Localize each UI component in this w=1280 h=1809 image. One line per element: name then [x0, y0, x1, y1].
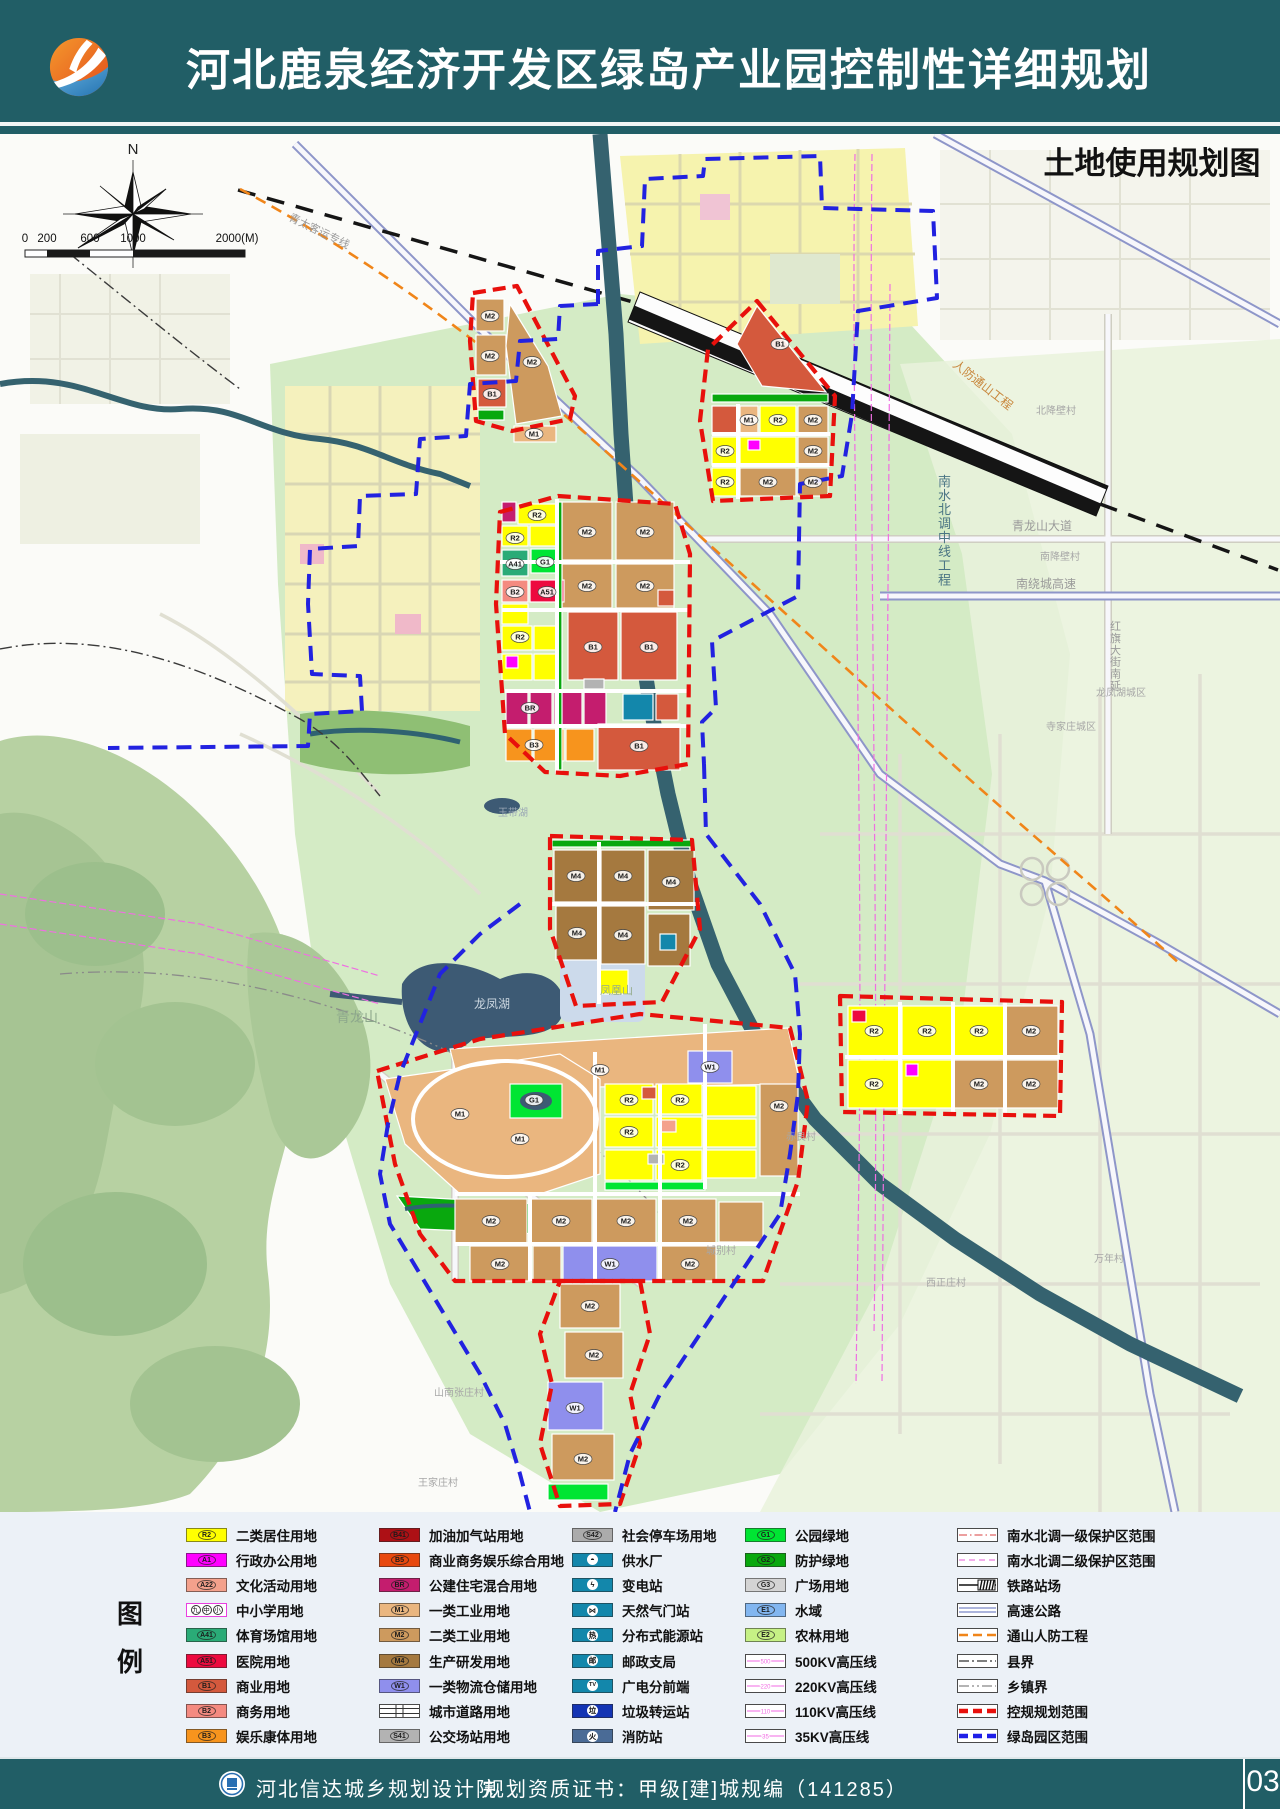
svg-text:M2: M2	[485, 352, 495, 361]
svg-text:B1: B1	[644, 643, 654, 652]
svg-text:A41: A41	[508, 560, 522, 569]
parcel-code: B1	[584, 642, 602, 653]
legend-item-label: 二类居住用地	[236, 1525, 317, 1545]
svg-text:M2: M2	[486, 1217, 496, 1226]
parcel-code: B2	[506, 587, 524, 598]
parcel-code: R2	[671, 1095, 689, 1106]
legend-item: B5商业商务娱乐综合用地	[379, 1547, 564, 1572]
place-label: 万年村	[1094, 1252, 1124, 1265]
legend-item-label: 分布式能源站	[622, 1625, 703, 1645]
legend-item: 通山人防工程	[957, 1623, 1156, 1648]
legend-item: 南水北调二级保护区范围	[957, 1547, 1156, 1572]
svg-text:M2: M2	[621, 1217, 631, 1226]
svg-text:R2: R2	[515, 633, 525, 642]
svg-text:M4: M4	[618, 931, 629, 940]
legend-swatch: G2	[745, 1553, 786, 1567]
place-label: 南水北调中线工程	[938, 474, 951, 587]
parcel-code: M2	[636, 581, 654, 592]
parcel-code: A41	[506, 559, 524, 570]
parcel-code: M4	[614, 930, 632, 941]
parcel-code: R2	[620, 1095, 638, 1106]
place-label: 王家庄村	[418, 1476, 458, 1489]
place-label: 红旗大街南延	[1110, 620, 1121, 692]
legend-item-label: 垃圾转运站	[622, 1701, 690, 1721]
legend-swatch: A1	[186, 1553, 227, 1567]
legend-swatch: 110	[745, 1704, 786, 1718]
legend-column: B41加油加气站用地B5商业商务娱乐综合用地BR公建住宅混合用地M1一类工业用地…	[379, 1522, 564, 1749]
parcel-code: M2	[552, 1216, 570, 1227]
legend-item: 110110KV高压线	[745, 1698, 877, 1723]
legend-item: 火消防站	[572, 1724, 717, 1749]
legend-item-label: 广电分前端	[622, 1676, 690, 1696]
west-village-grid	[285, 386, 480, 711]
institute-name: 河北信达城乡规划设计院	[256, 1773, 498, 1802]
legend-swatch: BR	[379, 1578, 420, 1592]
svg-text:220: 220	[760, 1684, 771, 1690]
legend-item-label: 城市道路用地	[429, 1701, 510, 1721]
parcel-code: M1	[451, 1109, 469, 1120]
legend-item: G2防护绿地	[745, 1547, 877, 1572]
svg-text:B1: B1	[487, 390, 497, 399]
legend-item: ⋈天然气门站	[572, 1598, 717, 1623]
svg-text:M2: M2	[640, 582, 650, 591]
svg-text:110: 110	[761, 1709, 771, 1715]
legend-swatch	[957, 1679, 998, 1693]
svg-text:M4: M4	[571, 872, 582, 881]
legend-item-label: 文化活动用地	[236, 1575, 317, 1595]
legend-swatch: R2	[186, 1528, 227, 1542]
svg-text:B2: B2	[510, 588, 520, 597]
legend-item: 高速公路	[957, 1598, 1156, 1623]
svg-text:2000(M): 2000(M)	[216, 233, 259, 245]
legend-swatch: M1	[379, 1603, 420, 1617]
legend-column: R2二类居住用地A1行政办公用地A22文化活动用地九中小中小学用地A41体育场馆…	[186, 1522, 317, 1749]
svg-text:B1: B1	[775, 340, 785, 349]
svg-text:R2: R2	[720, 447, 730, 456]
land-use-map[interactable]: M2M2B1M2M1B1M1R2M2R2M2M2M2R2M2M2M2M2R2R2…	[0, 134, 1280, 1512]
legend-item: BR公建住宅混合用地	[379, 1572, 564, 1597]
legend-item-label: 公交场站用地	[429, 1726, 510, 1746]
parcel-code: M2	[491, 1259, 509, 1270]
svg-text:M2: M2	[1026, 1027, 1036, 1036]
svg-text:M2: M2	[808, 416, 818, 425]
legend-swatch: A22	[186, 1578, 227, 1592]
legend-item: B1商业用地	[186, 1673, 317, 1698]
parcel-code: R2	[511, 632, 529, 643]
legend-item-label: 绿岛园区范围	[1007, 1726, 1088, 1746]
legend-swatch: B2	[186, 1704, 227, 1718]
legend-swatch: A51	[186, 1654, 227, 1668]
svg-text:M2: M2	[808, 478, 818, 487]
legend-item: G3广场用地	[745, 1572, 877, 1597]
parcel-code: M2	[636, 527, 654, 538]
legend-item: 城市道路用地	[379, 1698, 564, 1723]
parcel-code: A51	[538, 587, 556, 598]
parcel-code: B1	[771, 339, 789, 350]
legend-item-label: 县界	[1007, 1651, 1034, 1671]
place-label: 寺家庄城区	[1046, 720, 1096, 733]
legend-swatch: B3	[186, 1729, 227, 1743]
legend-swatch	[957, 1578, 998, 1592]
svg-text:M2: M2	[589, 1351, 599, 1360]
legend-swatch	[957, 1729, 998, 1743]
map-sheet-title: 土地使用规划图	[1044, 146, 1261, 181]
legend-item: 县界	[957, 1648, 1156, 1673]
legend-item: 南水北调一级保护区范围	[957, 1522, 1156, 1547]
legend-item: B3娱乐康体用地	[186, 1724, 317, 1749]
parcel-code: M2	[1022, 1079, 1040, 1090]
legend-item-label: 220KV高压线	[795, 1676, 877, 1696]
svg-text:M2: M2	[485, 312, 495, 321]
legend-item: 热分布式能源站	[572, 1623, 717, 1648]
parcel-code: W1	[701, 1062, 719, 1073]
legend-swatch: S41	[379, 1729, 420, 1743]
legend-item: 乡镇界	[957, 1673, 1156, 1698]
svg-text:M1: M1	[455, 1110, 465, 1119]
legend-item: A51医院用地	[186, 1648, 317, 1673]
legend-swatch: ⋈	[572, 1603, 613, 1617]
svg-text:M2: M2	[808, 447, 818, 456]
svg-text:R2: R2	[974, 1027, 984, 1036]
parcel-code: M2	[770, 1101, 788, 1112]
page-title: 河北鹿泉经济开发区绿岛产业园控制性详细规划	[186, 34, 1206, 98]
parcel-code: M2	[578, 527, 596, 538]
svg-text:M2: M2	[585, 1302, 595, 1311]
svg-text:R2: R2	[869, 1027, 879, 1036]
header-bar: 河北鹿泉经济开发区绿岛产业园控制性详细规划	[0, 0, 1280, 122]
legend-item: 垃垃圾转运站	[572, 1698, 717, 1723]
svg-text:M2: M2	[1026, 1080, 1036, 1089]
legend-item-label: 南水北调二级保护区范围	[1007, 1550, 1156, 1570]
parcel-code: M1	[740, 415, 758, 426]
legend-item-label: 乡镇界	[1007, 1676, 1048, 1696]
svg-text:M1: M1	[515, 1135, 525, 1144]
legend-item: S42社会停车场用地	[572, 1522, 717, 1547]
legend-swatch: B41	[379, 1528, 420, 1542]
legend-item: 500500KV高压线	[745, 1648, 877, 1673]
svg-text:35: 35	[762, 1734, 769, 1740]
legend-item: M1一类工业用地	[379, 1598, 564, 1623]
legend-item-label: 体育场馆用地	[236, 1625, 317, 1645]
place-label: 玉带湖	[498, 807, 528, 819]
legend-item-label: 35KV高压线	[795, 1726, 869, 1746]
parcel-code: M2	[970, 1079, 988, 1090]
map-canvas: M2M2B1M2M1B1M1R2M2R2M2M2M2R2M2M2M2M2R2R2…	[0, 134, 1280, 1512]
svg-text:R2: R2	[532, 511, 542, 520]
legend-item: G1公园绿地	[745, 1522, 877, 1547]
legend-swatch	[379, 1704, 420, 1718]
legend-swatch	[957, 1528, 998, 1542]
legend-swatch	[957, 1704, 998, 1718]
svg-text:R2: R2	[624, 1128, 634, 1137]
svg-text:M4: M4	[666, 878, 677, 887]
parcel-code: M2	[679, 1216, 697, 1227]
legend-item-label: 加油加气站用地	[429, 1525, 524, 1545]
svg-text:G1: G1	[529, 1096, 539, 1105]
parcel-code: M4	[614, 871, 632, 882]
svg-text:BR: BR	[525, 704, 536, 713]
legend-swatch: M2	[379, 1628, 420, 1642]
institute-seal-icon	[218, 1770, 246, 1798]
svg-text:R2: R2	[675, 1161, 685, 1170]
parcel-code: M2	[578, 581, 596, 592]
legend-item: 九中小中小学用地	[186, 1598, 317, 1623]
legend-item-label: 水域	[795, 1600, 822, 1620]
place-label: 南绕城高速	[1016, 576, 1076, 591]
legend-swatch: ◓	[572, 1553, 613, 1567]
legend-item-label: 供水厂	[622, 1550, 663, 1570]
svg-text:0: 0	[22, 233, 28, 245]
legend-swatch: M4	[379, 1654, 420, 1668]
parcel-code: B1	[640, 642, 658, 653]
parcel-code: M4	[662, 877, 680, 888]
parcel-code: G1	[525, 1095, 543, 1106]
svg-text:M2: M2	[556, 1217, 566, 1226]
legend-item: M4生产研发用地	[379, 1648, 564, 1673]
svg-text:R2: R2	[675, 1096, 685, 1105]
parcel-code: M2	[1022, 1026, 1040, 1037]
legend-item: 铁路站场	[957, 1572, 1156, 1597]
legend-item-label: 南水北调一级保护区范围	[1007, 1525, 1156, 1545]
legend-item: R2二类居住用地	[186, 1522, 317, 1547]
legend-swatch: G1	[745, 1528, 786, 1542]
legend-swatch: 热	[572, 1628, 613, 1642]
parcel-code: M2	[523, 357, 541, 368]
parcel-code: R2	[865, 1079, 883, 1090]
legend-swatch: 垃	[572, 1704, 613, 1718]
svg-text:R2: R2	[510, 534, 520, 543]
svg-text:W1: W1	[569, 1404, 580, 1413]
svg-text:500: 500	[760, 1659, 771, 1665]
place-label: 龙凤湖城区	[1096, 686, 1146, 699]
legend-item-label: 娱乐康体用地	[236, 1726, 317, 1746]
legend-item: S41公交场站用地	[379, 1724, 564, 1749]
parcel-code: M1	[591, 1065, 609, 1076]
legend-item-label: 商务用地	[236, 1701, 290, 1721]
parcel-code: M2	[804, 477, 822, 488]
svg-text:R2: R2	[773, 416, 783, 425]
parcel-code: M1	[525, 429, 543, 440]
legend-item: B2商务用地	[186, 1698, 317, 1723]
svg-text:M2: M2	[683, 1217, 693, 1226]
svg-text:M2: M2	[527, 358, 537, 367]
legend-swatch: 邮	[572, 1654, 613, 1668]
svg-text:M1: M1	[595, 1066, 605, 1075]
legend-column: S42社会停车场用地◓供水厂ϟ变电站⋈天然气门站热分布式能源站邮邮政支局TV广电…	[572, 1522, 717, 1749]
svg-text:M2: M2	[685, 1260, 695, 1269]
legend-swatch: 九中小	[186, 1603, 227, 1617]
parcel-code: M2	[681, 1259, 699, 1270]
parcel-code: M2	[481, 351, 499, 362]
parcel-code: BR	[521, 703, 539, 714]
svg-text:M2: M2	[640, 528, 650, 537]
legend-swatch	[957, 1553, 998, 1567]
legend-item: 邮邮政支局	[572, 1648, 717, 1673]
legend-item: 控规规划范围	[957, 1698, 1156, 1723]
legend-item-label: 铁路站场	[1007, 1575, 1061, 1595]
legend-item-label: 医院用地	[236, 1651, 290, 1671]
parcel-code: M2	[759, 477, 777, 488]
parcel-code: B3	[525, 740, 543, 751]
legend-item-label: 社会停车场用地	[622, 1525, 717, 1545]
legend-swatch: S42	[572, 1528, 613, 1542]
page-number: 03	[1246, 1765, 1280, 1799]
legend-item-label: 农林用地	[795, 1625, 849, 1645]
svg-text:M1: M1	[529, 430, 539, 439]
legend-item-label: 控规规划范围	[1007, 1701, 1088, 1721]
svg-text:A51: A51	[540, 588, 554, 597]
legend-item: A1行政办公用地	[186, 1547, 317, 1572]
parcel-code: M2	[482, 1216, 500, 1227]
parcel-code: M2	[617, 1216, 635, 1227]
parcel-code: R2	[528, 510, 546, 521]
legend-item-label: 生产研发用地	[429, 1651, 510, 1671]
legend-item-label: 高速公路	[1007, 1600, 1061, 1620]
parcel-code: R2	[918, 1026, 936, 1037]
legend-swatch: A41	[186, 1628, 227, 1642]
legend-panel: 图 例 R2二类居住用地A1行政办公用地A22文化活动用地九中小中小学用地A41…	[0, 1512, 1280, 1757]
place-label: 西正庄村	[926, 1276, 966, 1289]
svg-text:B1: B1	[634, 742, 644, 751]
parcel-code: R2	[620, 1127, 638, 1138]
place-label: 龙凤湖	[474, 996, 510, 1011]
parcel-code: M2	[585, 1350, 603, 1361]
legend-swatch	[957, 1654, 998, 1668]
svg-text:M2: M2	[495, 1260, 505, 1269]
certificate-text: 规划资质证书：甲级[建]城规编（141285）	[484, 1773, 908, 1802]
svg-text:1000: 1000	[120, 233, 146, 245]
legend-column: 南水北调一级保护区范围南水北调二级保护区范围铁路站场高速公路通山人防工程县界乡镇…	[957, 1522, 1156, 1749]
legend-item-label: 公建住宅混合用地	[429, 1575, 537, 1595]
svg-text:M4: M4	[618, 872, 629, 881]
legend-item-label: 二类工业用地	[429, 1625, 510, 1645]
svg-text:W1: W1	[704, 1063, 715, 1072]
svg-text:W1: W1	[604, 1260, 615, 1269]
legend-item: 220220KV高压线	[745, 1673, 877, 1698]
legend-item-label: 110KV高压线	[795, 1701, 876, 1721]
footer-bar: 河北信达城乡规划设计院 规划资质证书：甲级[建]城规编（141285） 03	[0, 1757, 1280, 1809]
planning-poster: 河北鹿泉经济开发区绿岛产业园控制性详细规划	[0, 0, 1280, 1809]
place-label: 赤良村	[786, 1130, 816, 1143]
legend-item-label: 一类工业用地	[429, 1600, 510, 1620]
legend-item: 3535KV高压线	[745, 1724, 877, 1749]
legend-title-char1: 图	[110, 1594, 150, 1631]
legend-item-label: 消防站	[622, 1726, 663, 1746]
parcel-code: M4	[568, 928, 586, 939]
legend-swatch	[957, 1628, 998, 1642]
parcel-code: M4	[567, 871, 585, 882]
legend-item: A41体育场馆用地	[186, 1623, 317, 1648]
svg-text:B3: B3	[529, 741, 539, 750]
parcel-code: R2	[716, 477, 734, 488]
svg-text:R2: R2	[624, 1096, 634, 1105]
parcel-code: G1	[536, 557, 554, 568]
legend-item: 绿岛园区范围	[957, 1724, 1156, 1749]
legend-swatch: 220	[745, 1679, 786, 1693]
parcel-code: R2	[716, 446, 734, 457]
place-label: 凤凰山	[600, 984, 633, 997]
legend-column: G1公园绿地G2防护绿地G3广场用地E1水域E2农林用地500500KV高压线2…	[745, 1522, 877, 1749]
legend-item-label: 公园绿地	[795, 1525, 849, 1545]
legend-swatch: E2	[745, 1628, 786, 1642]
legend-item-label: 行政办公用地	[236, 1550, 317, 1570]
legend-item-label: 500KV高压线	[795, 1651, 877, 1671]
svg-text:M4: M4	[572, 929, 583, 938]
place-label: 北降壁村	[1036, 404, 1076, 417]
place-label: 山南张庄村	[434, 1386, 484, 1399]
footer-divider	[1243, 1759, 1245, 1809]
legend-swatch: TV	[572, 1679, 613, 1693]
legend-item: B41加油加气站用地	[379, 1522, 564, 1547]
compass-north-label: N	[128, 141, 139, 158]
institute-logo-icon	[48, 36, 110, 98]
svg-text:M1: M1	[744, 416, 754, 425]
legend-item: ϟ变电站	[572, 1572, 717, 1597]
legend-swatch: 火	[572, 1729, 613, 1743]
legend-item-label: 通山人防工程	[1007, 1625, 1088, 1645]
legend-item-label: 广场用地	[795, 1575, 849, 1595]
parcel-code: M2	[581, 1301, 599, 1312]
parcel-code: R2	[506, 533, 524, 544]
legend-swatch: 35	[745, 1729, 786, 1743]
wetland	[300, 710, 470, 774]
parcel-code: W1	[566, 1403, 584, 1414]
legend-item: A22文化活动用地	[186, 1572, 317, 1597]
svg-text:M2: M2	[763, 478, 773, 487]
legend-item-label: 防护绿地	[795, 1550, 849, 1570]
parcel-code: M2	[804, 446, 822, 457]
parcel-code: M2	[574, 1454, 592, 1465]
legend-item: M2二类工业用地	[379, 1623, 564, 1648]
parcel-code: B1	[630, 741, 648, 752]
svg-text:B1: B1	[588, 643, 598, 652]
legend-swatch: E1	[745, 1603, 786, 1617]
svg-text:R2: R2	[922, 1027, 932, 1036]
svg-text:M2: M2	[578, 1455, 588, 1464]
svg-text:R2: R2	[869, 1080, 879, 1089]
legend-swatch: G3	[745, 1578, 786, 1592]
svg-text:M2: M2	[582, 582, 592, 591]
legend-item-label: 一类物流仓储用地	[429, 1676, 537, 1696]
parcel-code: R2	[865, 1026, 883, 1037]
legend-swatch: ϟ	[572, 1578, 613, 1592]
place-label: 青龙山	[336, 1009, 378, 1025]
svg-text:R2: R2	[720, 478, 730, 487]
place-label: 城别村	[706, 1244, 736, 1257]
parcel-code: M2	[804, 415, 822, 426]
svg-text:M2: M2	[582, 528, 592, 537]
parcel-code: M2	[481, 311, 499, 322]
legend-item: ◓供水厂	[572, 1547, 717, 1572]
parcel-code: R2	[769, 415, 787, 426]
legend-swatch: B1	[186, 1679, 227, 1693]
legend-swatch: W1	[379, 1679, 420, 1693]
legend-swatch: B5	[379, 1553, 420, 1567]
svg-text:M2: M2	[774, 1102, 784, 1111]
svg-text:M2: M2	[974, 1080, 984, 1089]
place-label: 青龙山大道	[1012, 519, 1072, 533]
svg-text:600: 600	[80, 233, 99, 245]
legend-item-label: 邮政支局	[622, 1651, 676, 1671]
place-label: 南降壁村	[1040, 550, 1080, 563]
parcel-code: R2	[970, 1026, 988, 1037]
legend-item-label: 天然气门站	[622, 1600, 690, 1620]
svg-text:G1: G1	[540, 558, 550, 567]
legend-swatch: 500	[745, 1654, 786, 1668]
header-strip	[0, 126, 1280, 134]
legend-item: E1水域	[745, 1598, 877, 1623]
parcel-code: W1	[601, 1259, 619, 1270]
